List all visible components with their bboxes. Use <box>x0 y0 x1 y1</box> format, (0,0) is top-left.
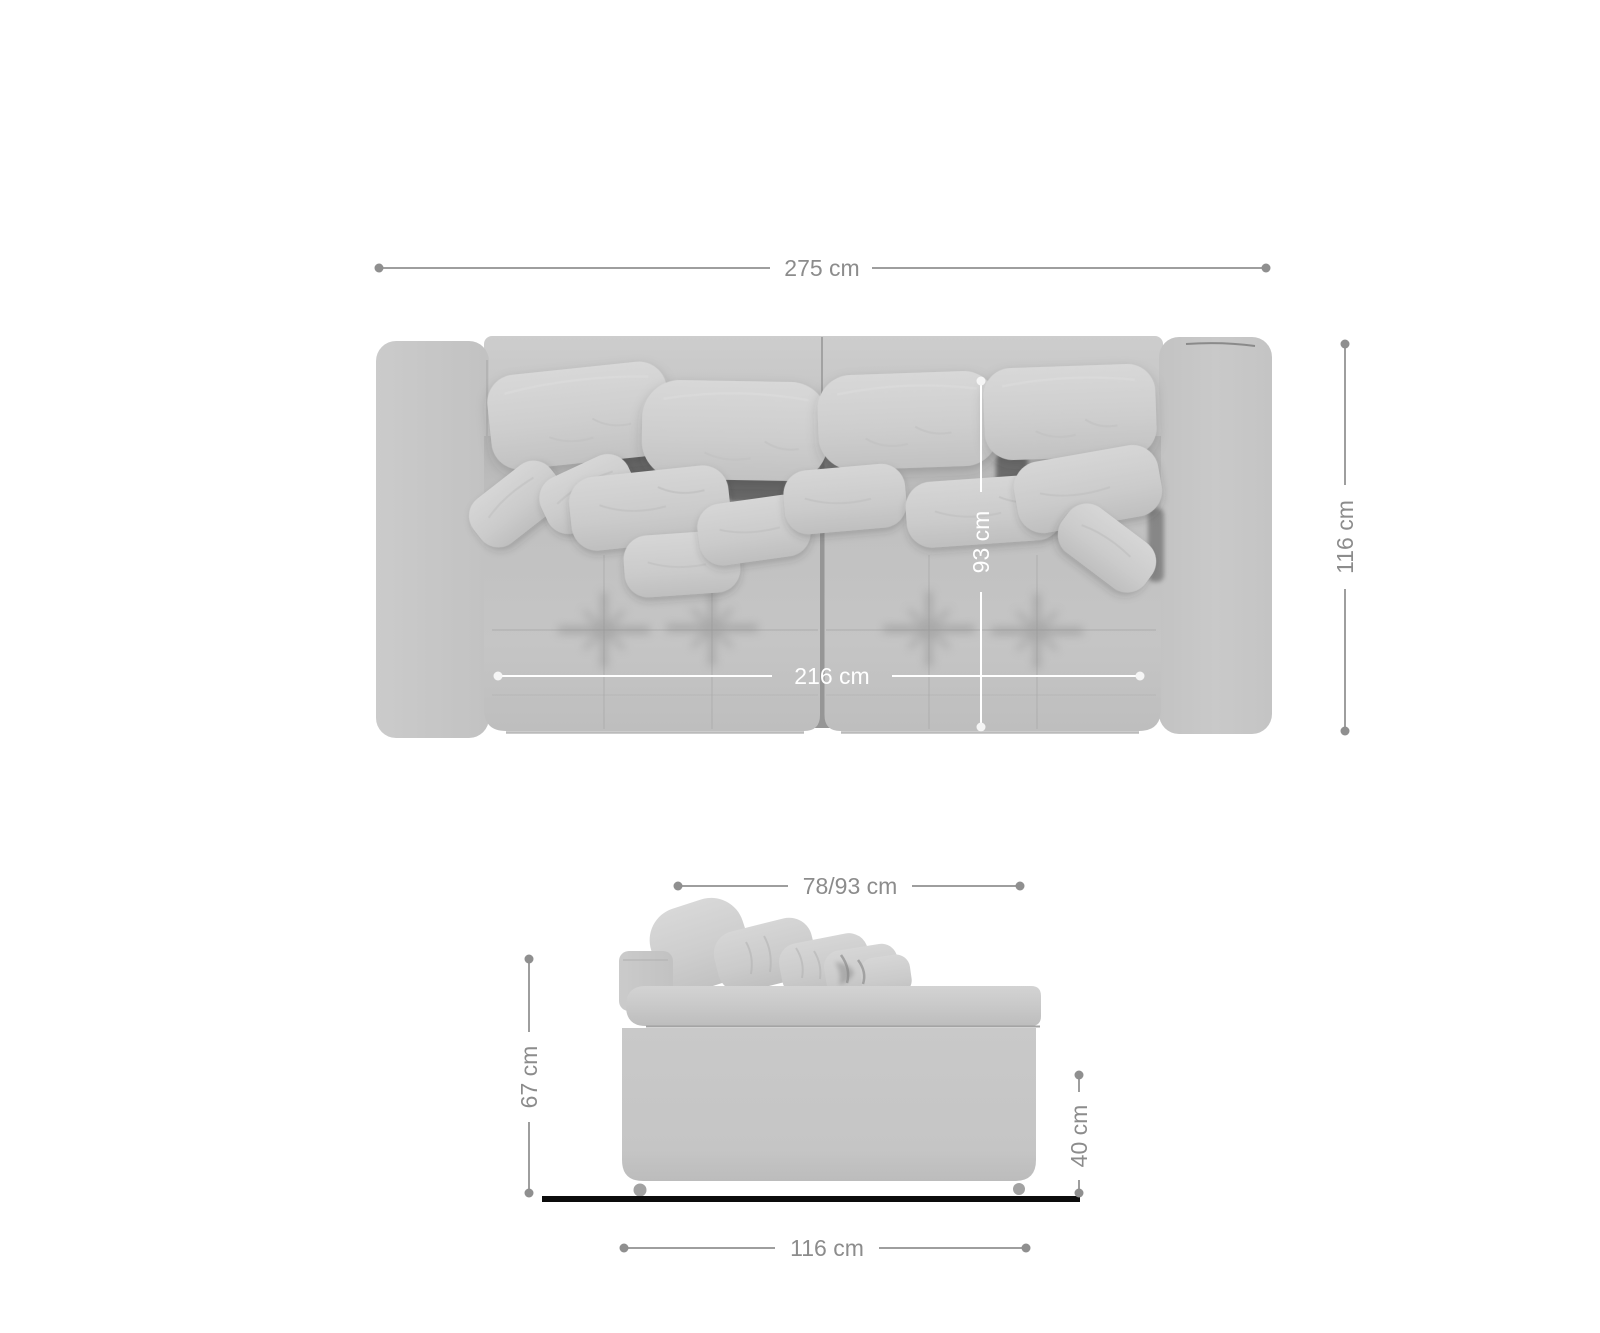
svg-text:78/93 cm: 78/93 cm <box>803 873 898 899</box>
svg-text:275 cm: 275 cm <box>784 255 859 281</box>
svg-text:67 cm: 67 cm <box>516 1046 542 1109</box>
svg-text:93 cm: 93 cm <box>968 511 994 574</box>
svg-text:116 cm: 116 cm <box>1332 500 1358 574</box>
svg-text:216 cm: 216 cm <box>794 663 869 689</box>
svg-text:40 cm: 40 cm <box>1066 1105 1092 1168</box>
svg-text:116 cm: 116 cm <box>790 1235 864 1261</box>
